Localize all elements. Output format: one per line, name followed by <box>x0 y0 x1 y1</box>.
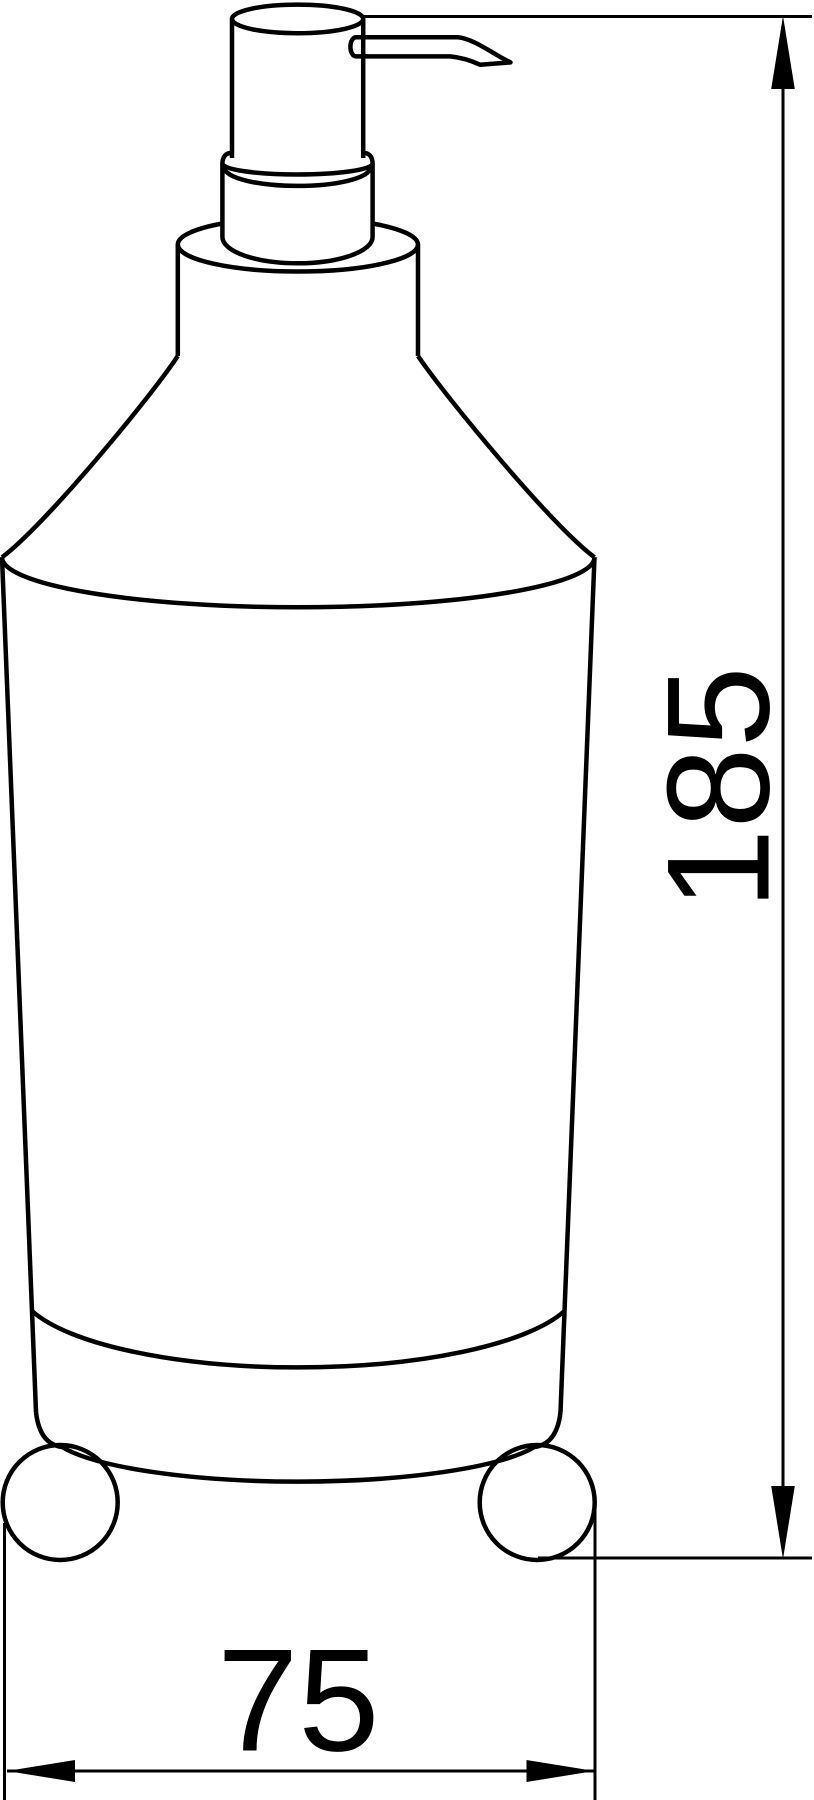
svg-text:185: 185 <box>637 666 800 910</box>
svg-text:75: 75 <box>217 1619 379 1782</box>
